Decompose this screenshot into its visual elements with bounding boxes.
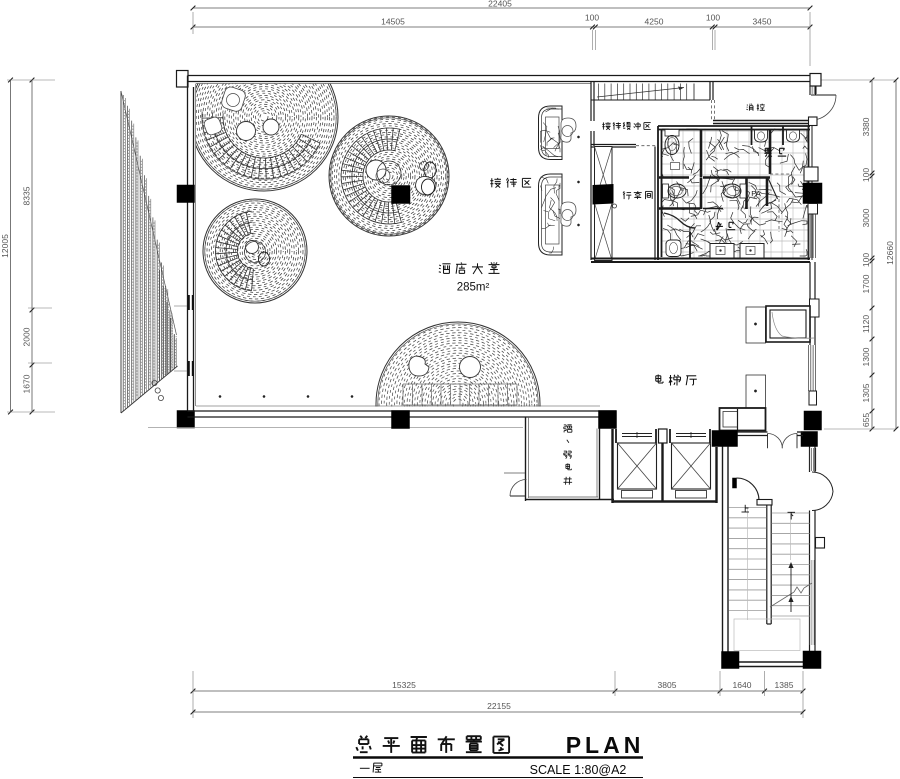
svg-text:3805: 3805 [658, 680, 677, 690]
svg-text:3380: 3380 [861, 117, 871, 136]
svg-text:3450: 3450 [753, 17, 772, 27]
svg-text:22155: 22155 [487, 701, 511, 711]
svg-text:285m²: 285m² [457, 282, 490, 294]
svg-text:4250: 4250 [645, 17, 664, 27]
svg-text:2000: 2000 [22, 327, 32, 346]
svg-text:100: 100 [861, 168, 871, 182]
svg-text:100: 100 [706, 13, 720, 23]
svg-text:12005: 12005 [0, 234, 10, 258]
svg-text:12660: 12660 [885, 241, 895, 265]
svg-text:1700: 1700 [861, 274, 871, 293]
svg-text:1640: 1640 [733, 680, 752, 690]
svg-text:1300: 1300 [861, 347, 871, 366]
svg-text:PA: PA [751, 189, 760, 198]
svg-text:3000: 3000 [861, 208, 871, 227]
svg-text:SCALE 1:80@A2: SCALE 1:80@A2 [530, 763, 627, 777]
svg-text:PLAN: PLAN [566, 732, 645, 758]
svg-text:15325: 15325 [392, 680, 416, 690]
svg-text:655: 655 [861, 413, 871, 427]
svg-text:1120: 1120 [861, 315, 871, 334]
svg-text:22405: 22405 [488, 0, 512, 9]
svg-text:8335: 8335 [22, 186, 32, 205]
svg-text:1305: 1305 [861, 383, 871, 402]
svg-text:14505: 14505 [381, 17, 405, 27]
svg-text:1385: 1385 [775, 680, 794, 690]
svg-text:100: 100 [861, 253, 871, 267]
svg-text:100: 100 [585, 13, 599, 23]
svg-text:1670: 1670 [22, 374, 32, 393]
